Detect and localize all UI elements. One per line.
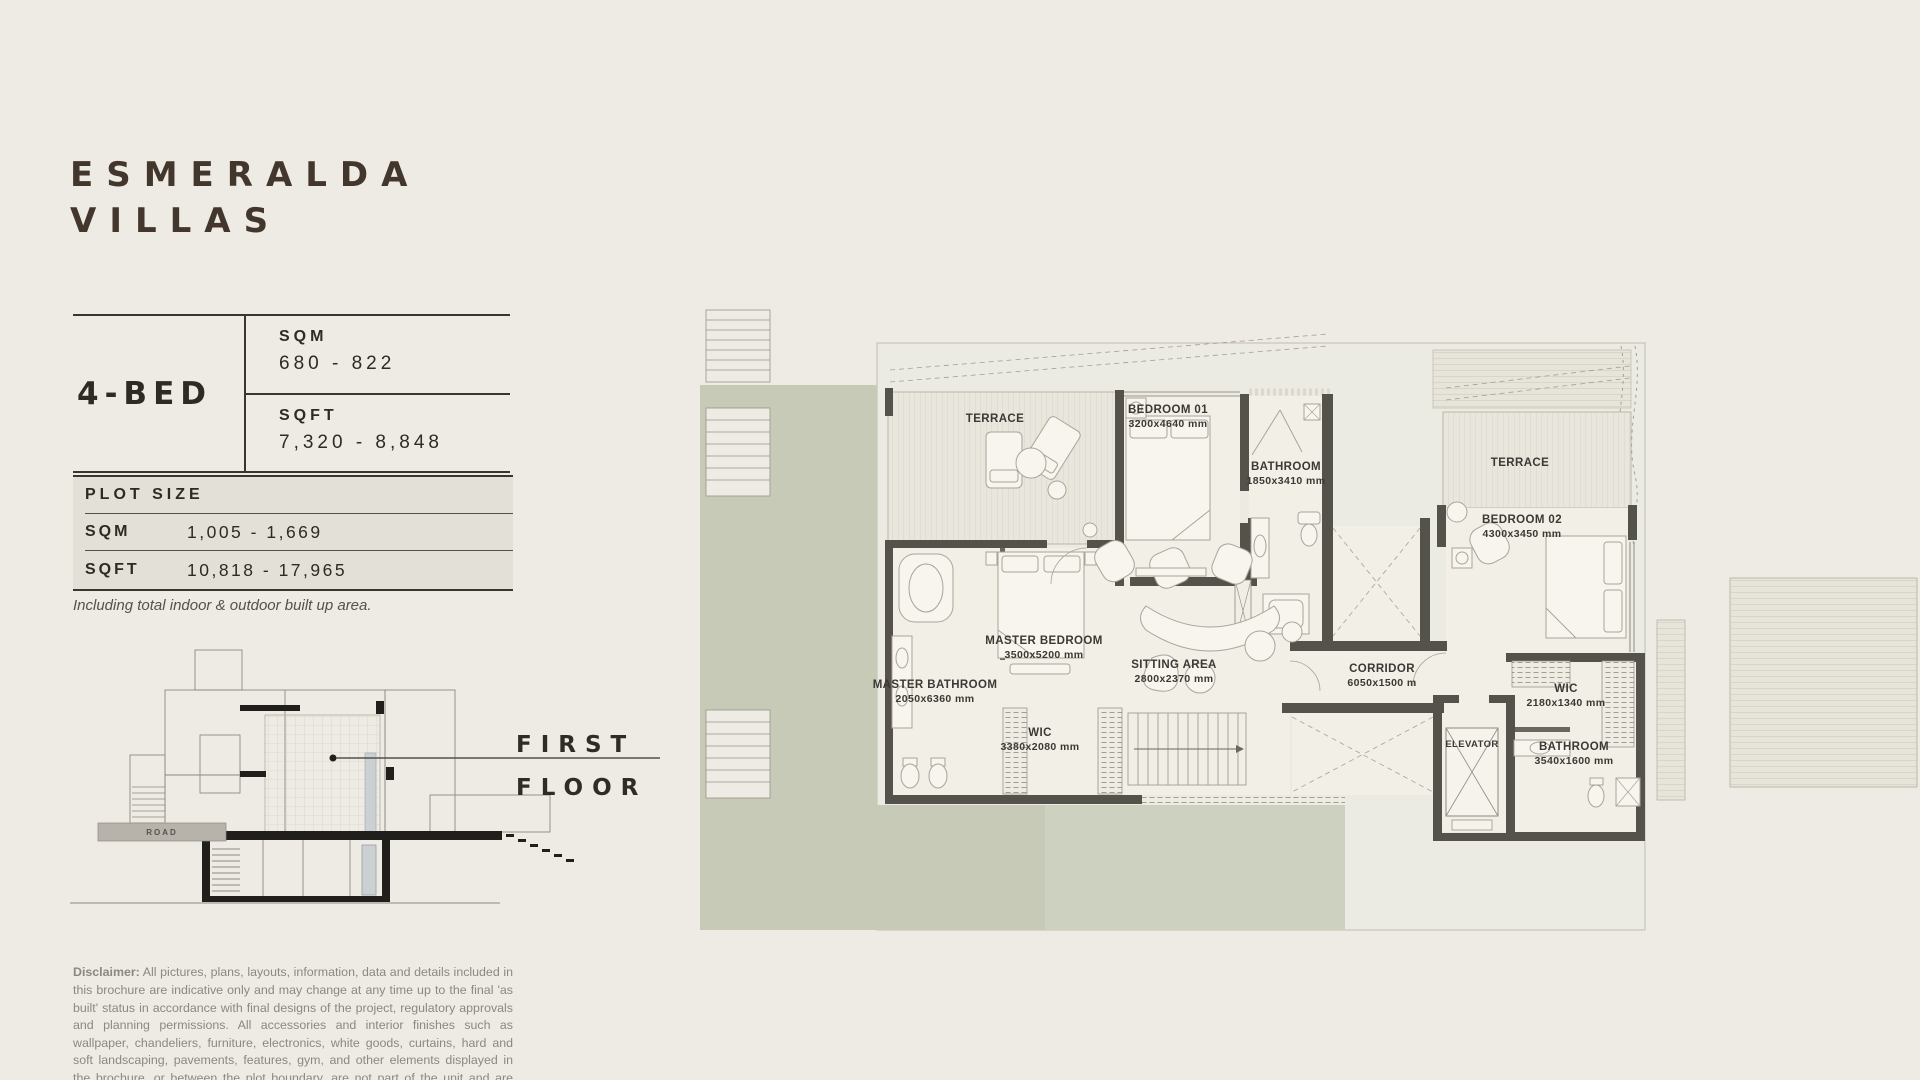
section-basement [212,840,376,896]
right-steps-strip [1657,620,1685,800]
road-label: ROAD [98,823,226,841]
leader-dot [330,755,337,762]
label-terrace-right: TERRACE [1491,457,1549,469]
label-bedroom-02-dims: 4300x3450 mm [1483,528,1562,540]
disclaimer-lead: Disclaimer: [73,965,140,979]
label-master-bedroom: MASTER BEDROOM [985,635,1102,647]
label-master-bedroom-dims: 3500x5200 mm [1005,649,1084,661]
label-bathroom-02: BATHROOM [1539,741,1609,753]
label-corridor-dims: 6050x1500 m [1347,677,1416,689]
label-bedroom-02: BEDROOM 02 [1482,514,1562,526]
deck-edge-hatch [1123,797,1345,804]
title-line-2: VILLAS [70,198,420,244]
plot-size-title: PLOT SIZE [85,486,204,504]
label-wic-2: WIC [1554,683,1578,695]
label-wic-1: WIC [1028,727,1052,739]
floor-plan: TERRACE BEDROOM 01 3200x4640 mm BATHROOM… [700,280,1920,940]
unit-sqft-value: 7,320 - 8,848 [279,432,510,454]
unit-sqm-value: 680 - 822 [279,353,510,375]
label-corridor: CORRIDOR [1349,663,1415,675]
page-title: ESMERALDA VILLAS [70,152,420,244]
label-bathroom-01: BATHROOM [1251,461,1321,473]
unit-sqft-label: SQFT [279,407,510,425]
plot-sqft-row: SQFT 10,818 - 17,965 [85,551,513,589]
unit-sqm-cell: SQM 680 - 822 [246,316,510,395]
right-louver-deck [1730,578,1917,787]
brochure-page: ESMERALDA VILLAS 4-BED SQM 680 - 822 SQF… [0,0,1920,1080]
label-elevator: ELEVATOR [1445,739,1498,750]
unit-sqft-cell: SQFT 7,320 - 8,848 [246,395,510,472]
section-right-steps [506,834,574,862]
pergola-strip [1433,350,1631,408]
plot-sqft-value: 10,818 - 17,965 [187,560,347,581]
label-bathroom-01-dims: 1850x3410 mm [1247,475,1326,487]
section-glazing [265,715,380,832]
unit-sqm-label: SQM [279,328,510,346]
plot-sqft-label: SQFT [85,561,187,579]
label-wic-2-dims: 2180x1340 mm [1527,697,1606,709]
unit-spec-table: 4-BED SQM 680 - 822 SQFT 7,320 - 8,848 [73,314,510,473]
disclaimer-text: Disclaimer: All pictures, plans, layouts… [73,964,513,1080]
floor-name-label: FIRST FLOOR [516,724,647,810]
label-wic-1-dims: 3380x2080 mm [1001,741,1080,753]
label-sitting-area-dims: 2800x2370 mm [1135,673,1214,685]
label-bedroom-01: BEDROOM 01 [1128,404,1208,416]
title-line-1: ESMERALDA [70,152,420,198]
plot-size-note: Including total indoor & outdoor built u… [73,597,372,614]
plot-size-table: PLOT SIZE SQM 1,005 - 1,669 SQFT 10,818 … [73,475,513,591]
label-terrace-left: TERRACE [966,413,1024,425]
road-label-text: ROAD [146,828,178,837]
floor-name-line-2: FLOOR [516,767,647,810]
plot-size-header: PLOT SIZE [85,477,513,514]
label-master-bathroom: MASTER BATHROOM [873,679,998,691]
disclaimer-body: All pictures, plans, layouts, informatio… [73,965,513,1080]
plot-sqm-label: SQM [85,523,187,541]
floor-name-line-1: FIRST [516,724,647,767]
section-window-slit [365,753,376,832]
unit-type-cell: 4-BED [73,316,246,471]
label-master-bathroom-dims: 2050x6360 mm [896,693,975,705]
unit-type: 4-BED [73,376,212,412]
plot-sqm-value: 1,005 - 1,669 [187,522,323,543]
unit-area-cells: SQM 680 - 822 SQFT 7,320 - 8,848 [246,316,510,471]
label-bedroom-01-dims: 3200x4640 mm [1129,418,1208,430]
label-sitting-area: SITTING AREA [1131,659,1217,671]
label-bathroom-02-dims: 3540x1600 mm [1535,755,1614,767]
plot-sqm-row: SQM 1,005 - 1,669 [85,514,513,551]
stairs [1128,713,1246,785]
